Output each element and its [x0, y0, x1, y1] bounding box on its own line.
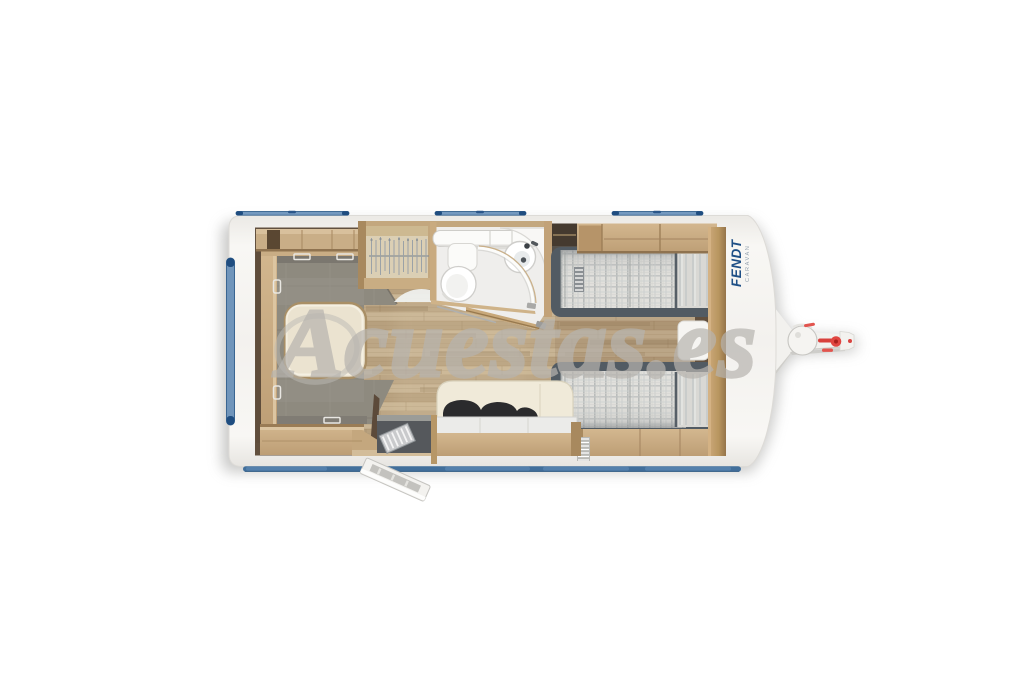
- svg-text:CARAVAN: CARAVAN: [745, 245, 751, 282]
- svg-text:FENDT: FENDT: [729, 238, 744, 287]
- svg-text:Acuestas.es: Acuestas.es: [272, 290, 756, 398]
